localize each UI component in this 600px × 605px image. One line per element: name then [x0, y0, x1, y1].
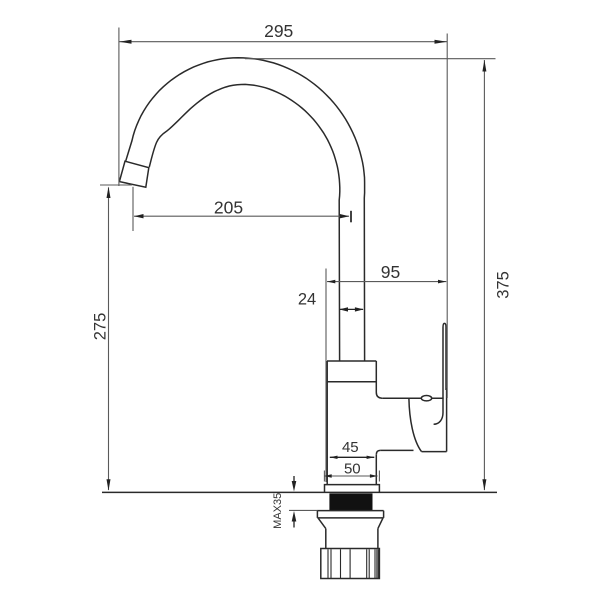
- svg-text:MAX35: MAX35: [272, 493, 284, 529]
- svg-text:50: 50: [344, 460, 361, 477]
- svg-text:24: 24: [298, 291, 316, 309]
- svg-text:275: 275: [91, 313, 109, 341]
- svg-text:205: 205: [214, 198, 243, 218]
- svg-text:45: 45: [342, 439, 359, 456]
- svg-text:295: 295: [264, 21, 293, 41]
- svg-text:95: 95: [381, 262, 400, 282]
- svg-text:375: 375: [494, 271, 512, 299]
